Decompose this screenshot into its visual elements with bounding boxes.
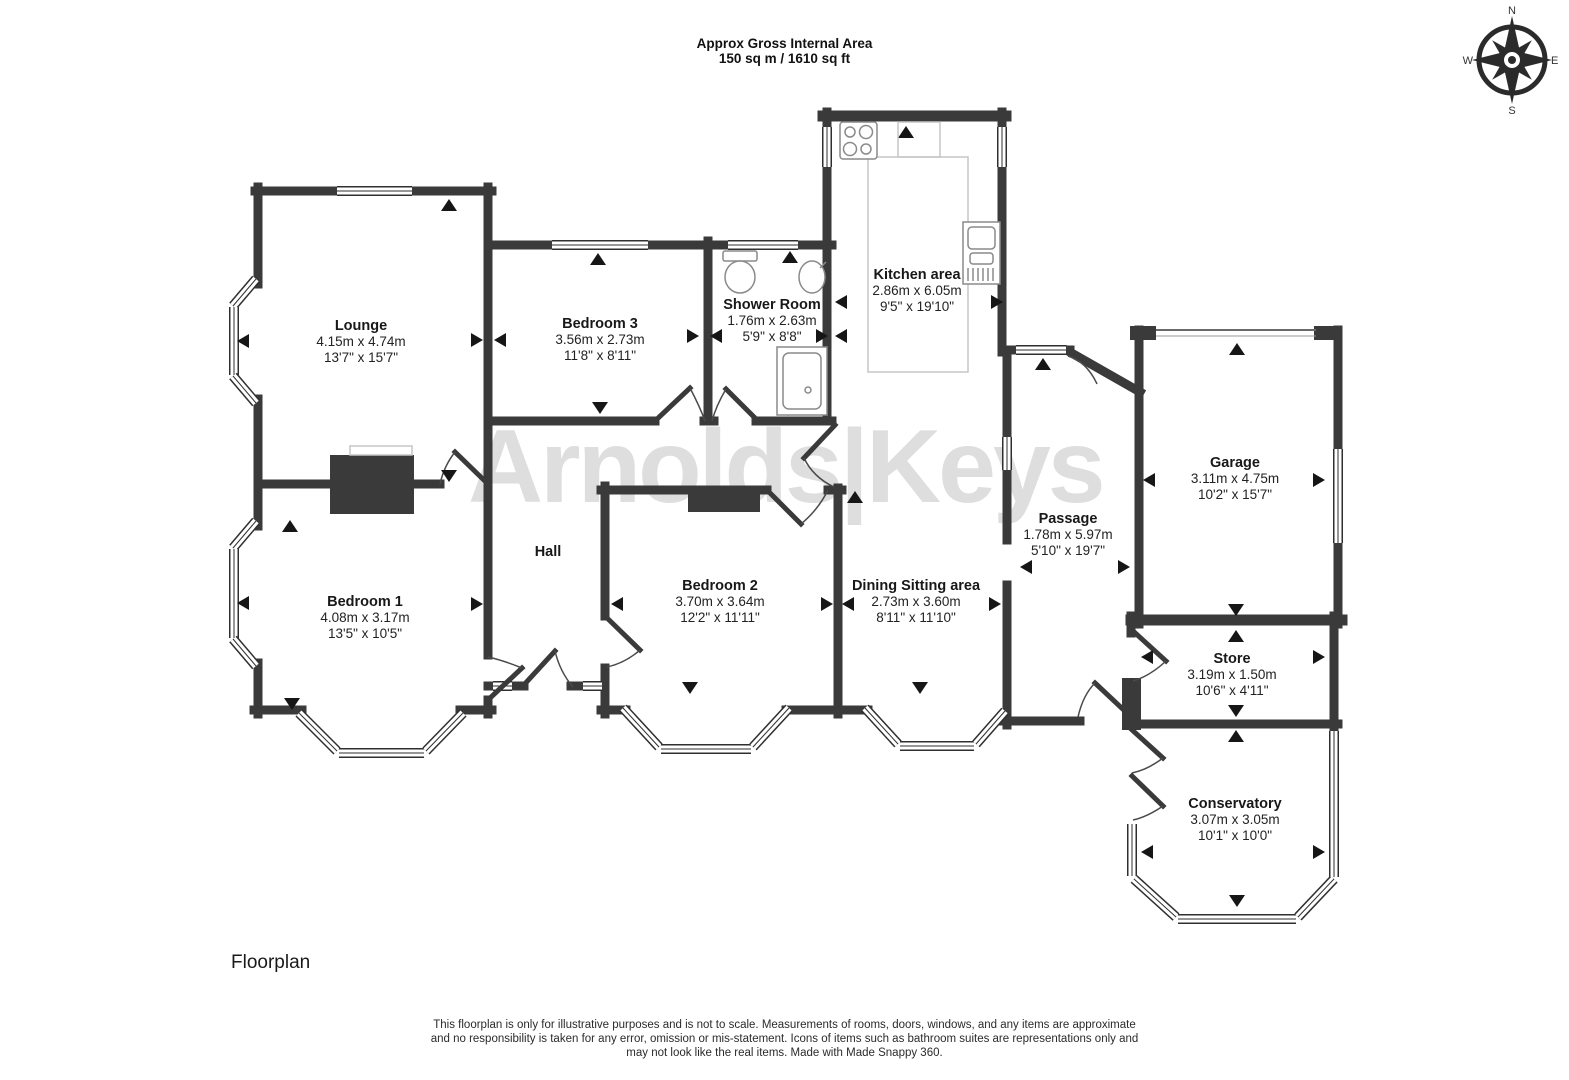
room-name: Bedroom 2 bbox=[675, 578, 764, 594]
room-size-imperial: 10'1" x 10'0" bbox=[1188, 828, 1281, 844]
room-size-imperial: 9'5" x 19'10" bbox=[872, 299, 961, 315]
fireplace bbox=[330, 455, 414, 514]
room-name: Garage bbox=[1191, 455, 1279, 471]
compass-north-label: N bbox=[1508, 5, 1516, 17]
room-label-bedroom3: Bedroom 3 3.56m x 2.73m 11'8" x 8'11" bbox=[555, 316, 644, 364]
basin-icon bbox=[799, 261, 826, 293]
room-label-kitchen: Kitchen area 2.86m x 6.05m 9'5" x 19'10" bbox=[872, 267, 961, 315]
room-size-metric: 3.56m x 2.73m bbox=[555, 332, 644, 348]
room-size-metric: 2.73m x 3.60m bbox=[852, 594, 980, 610]
room-size-imperial: 12'2" x 11'11" bbox=[675, 610, 764, 626]
room-name: Shower Room bbox=[723, 297, 820, 313]
room-name: Hall bbox=[535, 544, 562, 560]
room-size-metric: 2.86m x 6.05m bbox=[872, 283, 961, 299]
walls bbox=[254, 112, 1342, 730]
floorplan-page: Approx Gross Internal Area 150 sq m / 16… bbox=[0, 0, 1569, 1080]
room-size-metric: 3.70m x 3.64m bbox=[675, 594, 764, 610]
room-label-bedroom2: Bedroom 2 3.70m x 3.64m 12'2" x 11'11" bbox=[675, 578, 764, 626]
bedroom2-chimney bbox=[688, 490, 760, 512]
room-label-bedroom1: Bedroom 1 4.08m x 3.17m 13'5" x 10'5" bbox=[320, 594, 409, 642]
room-name: Store bbox=[1187, 651, 1276, 667]
compass-south-label: S bbox=[1508, 105, 1515, 117]
room-name: Passage bbox=[1023, 511, 1112, 527]
room-label-store: Store 3.19m x 1.50m 10'6" x 4'11" bbox=[1187, 651, 1276, 699]
room-size-imperial: 13'7" x 15'7" bbox=[316, 350, 405, 366]
gross-internal-area-title: Approx Gross Internal Area 150 sq m / 16… bbox=[0, 36, 1569, 66]
room-name: Dining Sitting area bbox=[852, 578, 980, 594]
room-size-imperial: 11'8" x 8'11" bbox=[555, 348, 644, 364]
room-size-imperial: 8'11" x 11'10" bbox=[852, 610, 980, 626]
room-label-passage: Passage 1.78m x 5.97m 5'10" x 19'7" bbox=[1023, 511, 1112, 559]
toilet-icon bbox=[723, 251, 757, 293]
room-size-metric: 4.15m x 4.74m bbox=[316, 334, 405, 350]
room-size-metric: 4.08m x 3.17m bbox=[320, 610, 409, 626]
room-size-imperial: 13'5" x 10'5" bbox=[320, 626, 409, 642]
room-name: Lounge bbox=[316, 318, 405, 334]
floorplan-caption: Floorplan bbox=[231, 952, 310, 974]
room-size-metric: 1.78m x 5.97m bbox=[1023, 527, 1112, 543]
title-line2: 150 sq m / 1610 sq ft bbox=[0, 51, 1569, 66]
floorplan-drawing: N E S W bbox=[0, 0, 1569, 1080]
disclaimer-text: This floorplan is only for illustrative … bbox=[425, 1018, 1145, 1060]
room-label-lounge: Lounge 4.15m x 4.74m 13'7" x 15'7" bbox=[316, 318, 405, 366]
room-size-metric: 3.07m x 3.05m bbox=[1188, 812, 1281, 828]
room-name: Conservatory bbox=[1188, 796, 1281, 812]
room-label-hall: Hall bbox=[535, 544, 562, 560]
hearth-outline bbox=[350, 446, 412, 455]
hob-icon bbox=[840, 122, 877, 159]
room-size-metric: 3.19m x 1.50m bbox=[1187, 667, 1276, 683]
shower-tray-icon bbox=[777, 347, 827, 415]
room-name: Bedroom 3 bbox=[555, 316, 644, 332]
kitchen-sink-icon bbox=[963, 222, 1000, 284]
room-label-dining-sitting: Dining Sitting area 2.73m x 3.60m 8'11" … bbox=[852, 578, 980, 626]
room-size-metric: 3.11m x 4.75m bbox=[1191, 471, 1279, 487]
room-size-imperial: 10'2" x 15'7" bbox=[1191, 487, 1279, 503]
room-size-imperial: 5'10" x 19'7" bbox=[1023, 543, 1112, 559]
title-line1: Approx Gross Internal Area bbox=[0, 36, 1569, 51]
room-label-garage: Garage 3.11m x 4.75m 10'2" x 15'7" bbox=[1191, 455, 1279, 503]
windows bbox=[233, 127, 1338, 919]
room-size-imperial: 10'6" x 4'11" bbox=[1187, 683, 1276, 699]
room-size-imperial: 5'9" x 8'8" bbox=[723, 329, 820, 345]
room-size-metric: 1.76m x 2.63m bbox=[723, 313, 820, 329]
doors bbox=[440, 356, 1166, 820]
kitchen-fixtures bbox=[840, 122, 1000, 372]
room-name: Kitchen area bbox=[872, 267, 961, 283]
room-label-shower-room: Shower Room 1.76m x 2.63m 5'9" x 8'8" bbox=[723, 297, 820, 345]
room-name: Bedroom 1 bbox=[320, 594, 409, 610]
room-label-conservatory: Conservatory 3.07m x 3.05m 10'1" x 10'0" bbox=[1188, 796, 1281, 844]
